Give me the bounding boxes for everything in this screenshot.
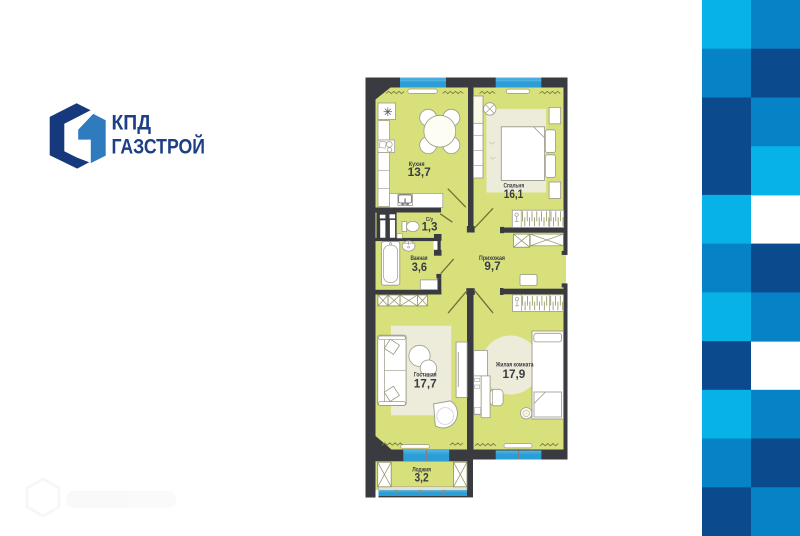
svg-text:3,6: 3,6 [412, 260, 427, 274]
svg-text:3,2: 3,2 [415, 470, 429, 484]
svg-text:17,9: 17,9 [503, 367, 526, 381]
svg-text:КПД: КПД [112, 111, 152, 134]
svg-text:ГАЗСТРОЙ: ГАЗСТРОЙ [112, 134, 206, 158]
svg-text:17,7: 17,7 [414, 376, 437, 390]
svg-text:9,7: 9,7 [484, 259, 501, 273]
svg-text:1,3: 1,3 [422, 221, 438, 233]
svg-text:16,1: 16,1 [504, 187, 524, 201]
svg-text:13,7: 13,7 [408, 165, 431, 179]
